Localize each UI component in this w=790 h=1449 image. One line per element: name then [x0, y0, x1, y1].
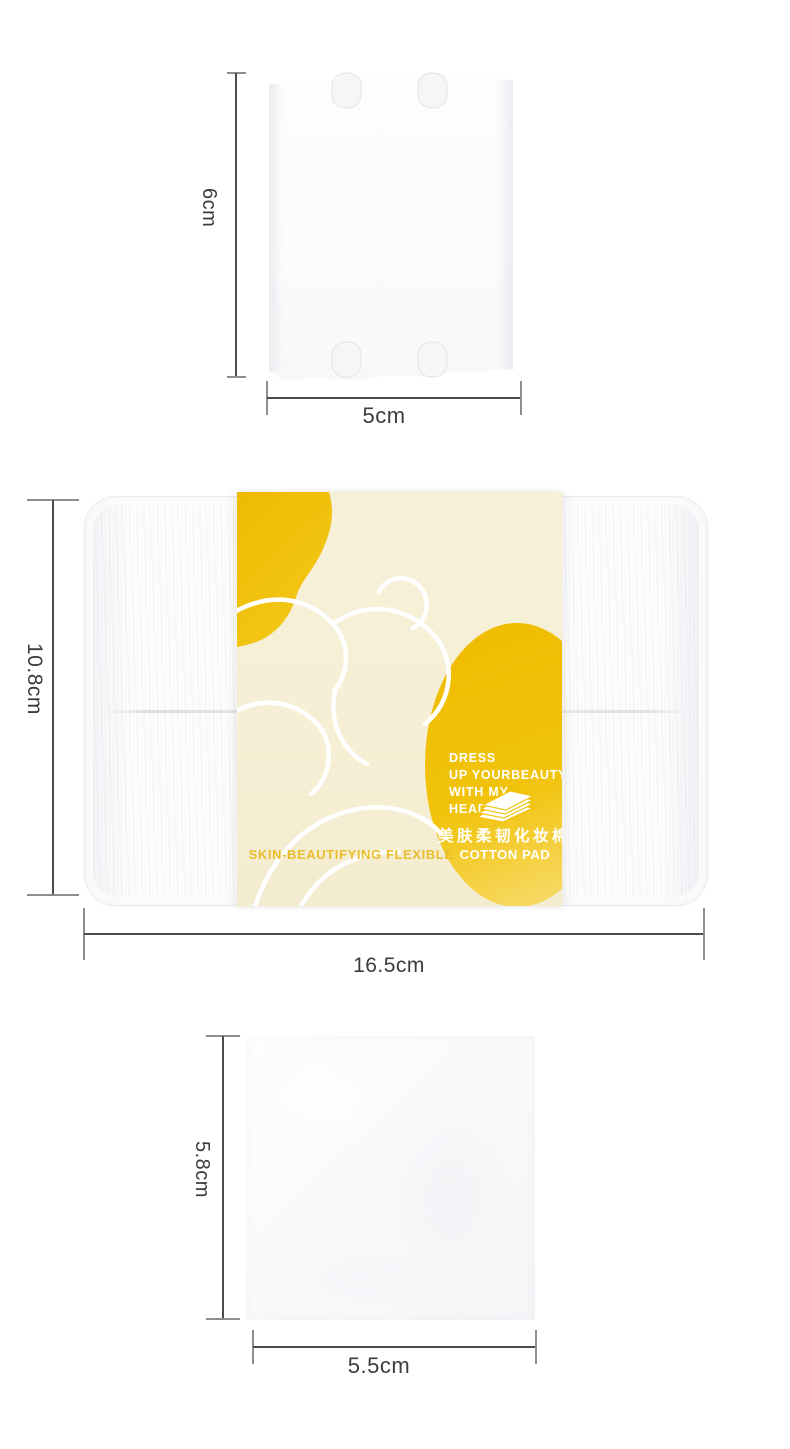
top-pad-height-cap-bottom	[227, 376, 246, 378]
product-name-en-left: SKIN-BEAUTIFYING FLEXIBLE	[249, 847, 454, 862]
package-width-line	[84, 933, 704, 935]
product-name-zh: 美肤柔韧化妆棉	[438, 824, 562, 846]
top-pad-dimple	[418, 73, 447, 108]
bottom-pad-height-cap-bottom	[206, 1318, 240, 1320]
bottom-pad-height-label: 5.8cm	[190, 1141, 213, 1198]
top-pad-dimple	[332, 73, 361, 108]
package-height-line	[52, 500, 54, 895]
product-name-en-right: COTTON PAD	[460, 847, 551, 862]
top-pad-dimple	[418, 342, 447, 377]
bottom-pad-image	[246, 1036, 535, 1320]
top-pad-image	[261, 66, 519, 382]
top-pad-width-label: 5cm	[334, 403, 434, 429]
top-pad-height-line	[235, 73, 237, 377]
package-height-cap-bottom	[27, 894, 79, 896]
package-width-label: 16.5cm	[339, 954, 439, 978]
top-pad-shape	[269, 73, 513, 380]
top-pad-width-cap-right	[520, 381, 522, 415]
slogan-line: DRESS	[449, 750, 562, 767]
slogan-line: UP YOURBEAUTY	[449, 767, 562, 784]
bottom-pad-height-line	[222, 1036, 224, 1319]
cotton-pad-stack-icon	[475, 789, 535, 825]
bottom-pad-width-cap-right	[535, 1330, 537, 1364]
product-name-en: SKIN-BEAUTIFYING FLEXIBLE COTTON PAD	[237, 847, 562, 862]
bottom-pad-width-label: 5.5cm	[329, 1353, 429, 1379]
yellow-blob	[237, 492, 332, 647]
package-height-label: 10.8cm	[22, 643, 46, 715]
package-label-band: DRESS UP YOURBEAUTY WITH MY HEART 美肤柔韧化妆…	[237, 492, 562, 906]
top-pad-width-line	[267, 397, 521, 399]
top-pad-dimple	[332, 342, 361, 377]
package-width-cap-right	[703, 908, 705, 960]
top-pad-height-label: 6cm	[197, 188, 220, 227]
bottom-pad-width-line	[253, 1346, 536, 1348]
product-size-sheet: 6cm	[0, 0, 790, 1449]
